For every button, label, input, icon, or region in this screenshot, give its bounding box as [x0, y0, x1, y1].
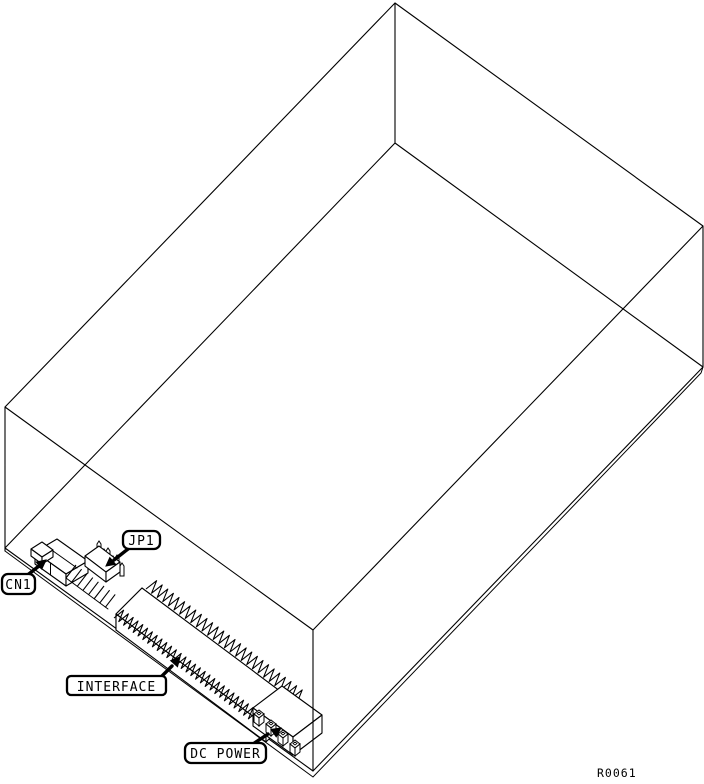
dc-power-pin: [254, 710, 264, 726]
diagram-canvas: CN1 JP1 INTERFACE DC POWER R0061: [0, 0, 704, 784]
dc-power-label: DC POWER: [190, 747, 261, 762]
interface-label: INTERFACE: [77, 680, 156, 695]
jp1-pin: [120, 563, 124, 576]
drawing-ref: R0061: [597, 766, 637, 780]
enclosure-wireframe: [5, 3, 703, 771]
connector-location-diagram: CN1 JP1 INTERFACE DC POWER R0061: [0, 0, 704, 784]
cn1-label: CN1: [5, 578, 31, 593]
jp1-label: JP1: [128, 534, 154, 549]
dc-power-pin: [278, 730, 288, 746]
jp1-callout: JP1: [106, 531, 160, 566]
jp1-leader-arrow: [114, 549, 128, 560]
dc-power-pin: [290, 740, 300, 756]
dc-power-callout: DC POWER: [185, 728, 281, 763]
